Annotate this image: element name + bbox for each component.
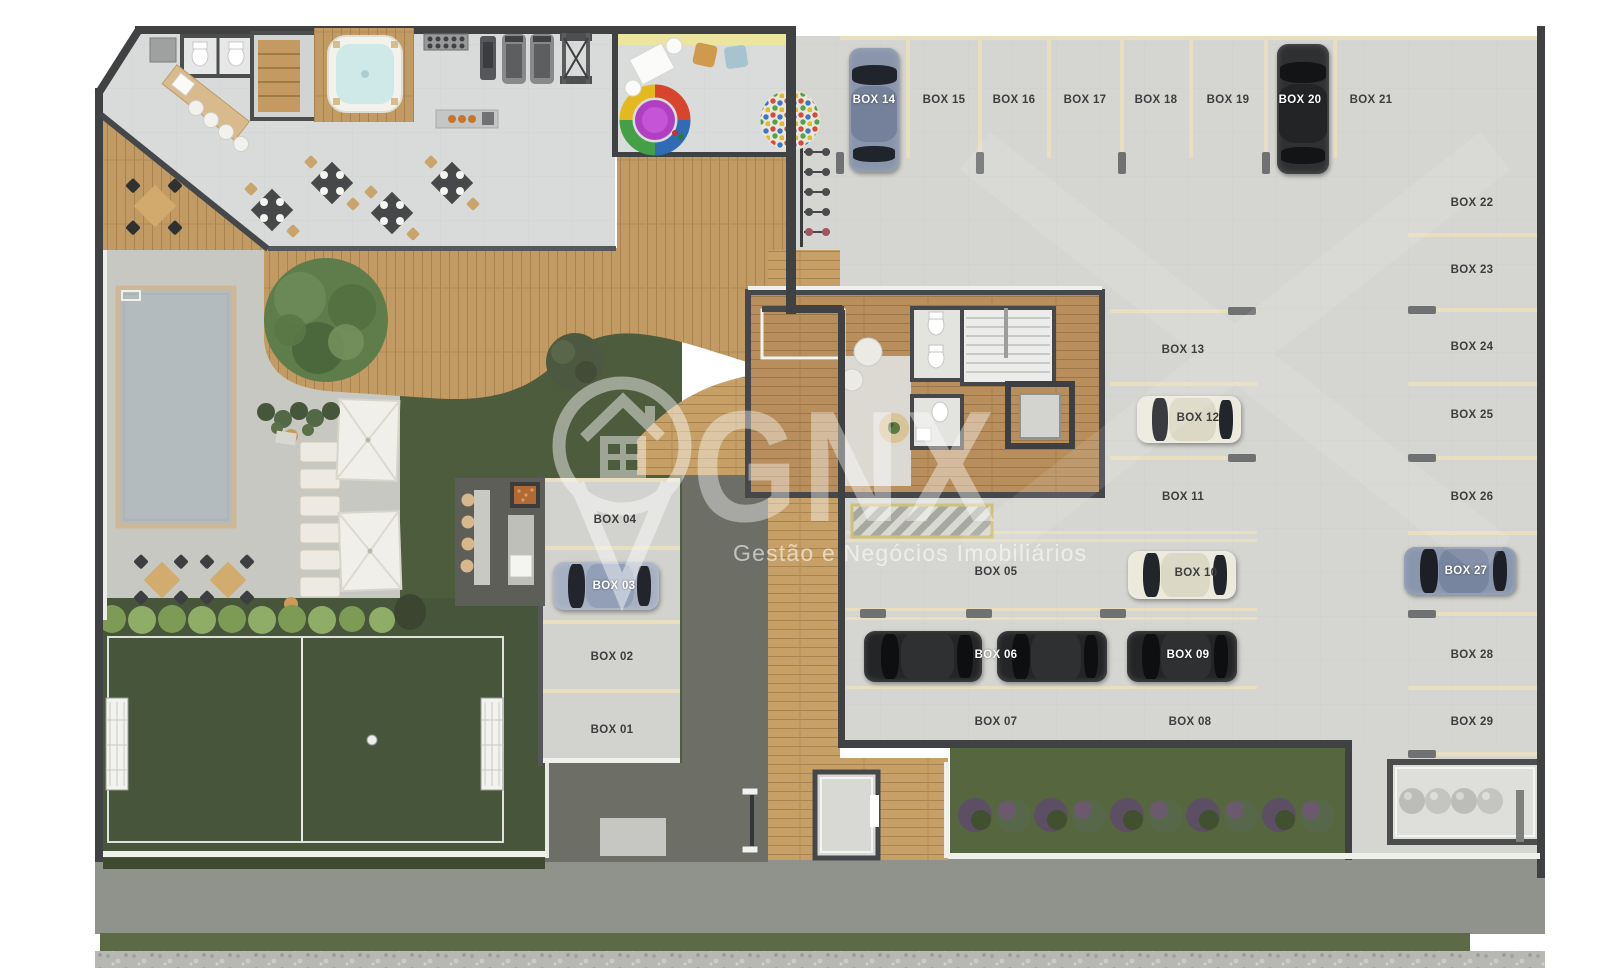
sink-icon bbox=[916, 428, 931, 441]
core-building bbox=[748, 286, 1102, 495]
tree bbox=[264, 258, 388, 382]
sidewalk bbox=[95, 858, 1545, 934]
no-parking-hatch bbox=[852, 505, 992, 537]
left-parking-column bbox=[538, 476, 680, 766]
deck-below-playground bbox=[617, 155, 792, 250]
hot-tub bbox=[314, 28, 414, 122]
bbq-patio bbox=[455, 478, 545, 606]
gas-room bbox=[1390, 762, 1540, 842]
gravel-road bbox=[95, 951, 1545, 968]
toilet-icon bbox=[932, 402, 948, 422]
pool bbox=[118, 288, 234, 526]
floorplan-graphic bbox=[0, 0, 1600, 973]
cable-machine-icon bbox=[560, 33, 592, 84]
elevator bbox=[1008, 384, 1072, 446]
shrub bbox=[546, 333, 604, 391]
floor-plan: GNX Gestão e Negócios Imobiliários BOX 0… bbox=[0, 0, 1600, 973]
stairs bbox=[962, 308, 1054, 384]
green-strip bbox=[100, 933, 1470, 951]
